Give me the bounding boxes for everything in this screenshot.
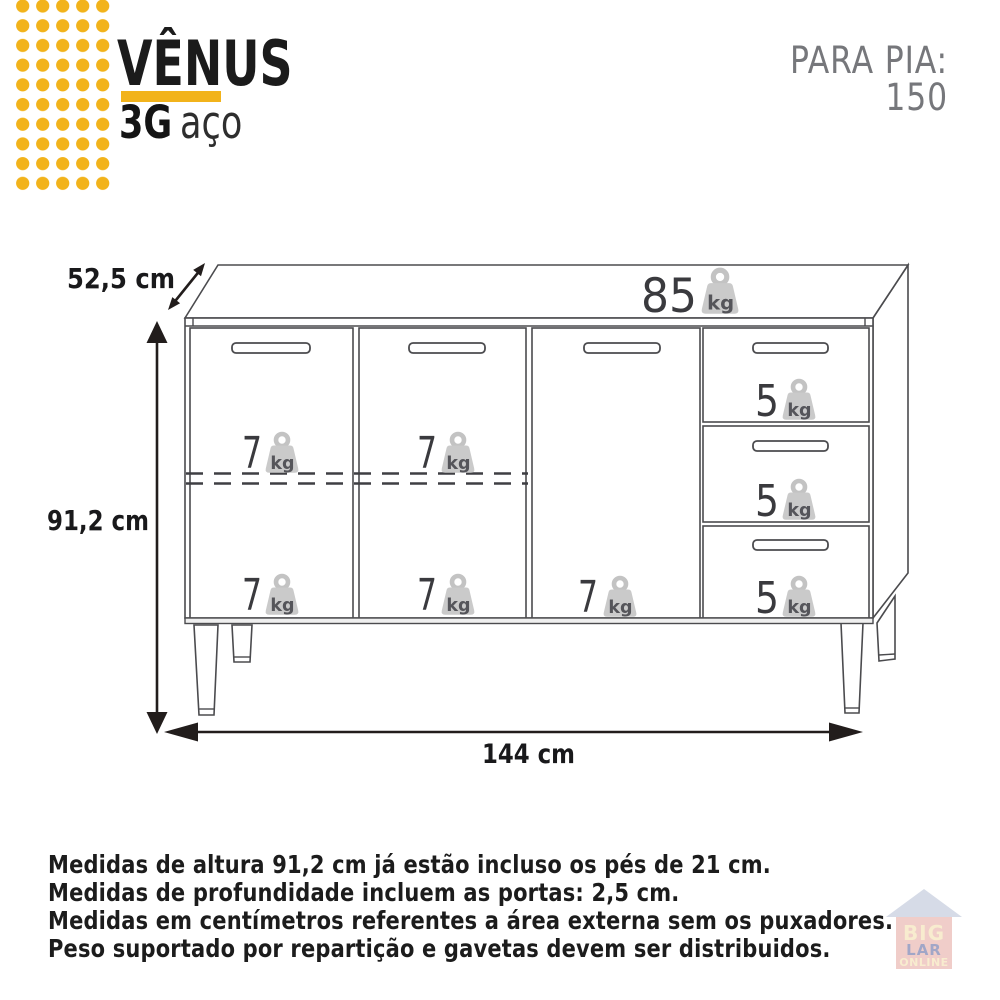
width-label: 144 cm — [482, 739, 575, 770]
series-label: 3G — [119, 96, 172, 149]
drawer2-capacity: 5 — [755, 476, 779, 527]
drawer3-capacity: 5 — [755, 573, 779, 624]
cabinet-side-face — [873, 265, 908, 618]
top-capacity-value: 85 — [641, 269, 697, 324]
material-label: aço — [180, 96, 242, 149]
cabinet-top-face — [185, 265, 908, 318]
note-depth: Medidas de profundidade incluem as porta… — [48, 879, 893, 907]
drawer1-capacity: 5 — [755, 376, 779, 427]
depth-label: 52,5 cm — [67, 262, 175, 295]
cabinet-leg-front-left — [194, 625, 218, 715]
watermark-house-roof — [886, 889, 962, 917]
sink-label: PARA PIA: — [608, 42, 948, 79]
product-name: VÊNUS — [117, 33, 293, 95]
door2-bottom-capacity: 7 — [417, 570, 437, 621]
note-weight-distribution: Peso suportado por repartição e gavetas … — [48, 935, 893, 963]
door1-top-capacity: 7 — [242, 428, 262, 479]
watermark-line3: ONLINE — [899, 956, 948, 969]
drawer-3-handle — [753, 540, 828, 550]
measurement-notes: Medidas de altura 91,2 cm já estão inclu… — [48, 851, 893, 963]
sink-value: 150 — [608, 79, 948, 116]
cabinet-leg-front-right — [841, 623, 863, 713]
dots-pattern-decoration — [0, 0, 112, 192]
note-height: Medidas de altura 91,2 cm já estão inclu… — [48, 851, 893, 879]
drawer-1-handle — [753, 343, 828, 353]
door3-bottom-capacity: 7 — [578, 572, 598, 623]
door2-top-capacity: 7 — [417, 428, 437, 479]
product-spec-sheet: { "header": { "product": "VÊNUS", "serie… — [0, 0, 1000, 1000]
door-1-handle — [232, 343, 310, 353]
door-3-handle — [584, 343, 660, 353]
cabinet-technical-drawing: kg 85 7 7 7 7 7 5 5 — [0, 235, 1000, 805]
door1-bottom-capacity: 7 — [242, 570, 262, 621]
height-label: 91,2 cm — [47, 504, 149, 537]
store-watermark-logo: BIG LAR ONLINE — [886, 887, 962, 971]
drawer-2-handle — [753, 441, 828, 451]
door-2-handle — [409, 343, 485, 353]
door-3 — [532, 328, 700, 618]
note-external-area: Medidas em centímetros referentes a área… — [48, 907, 893, 935]
product-series-line: 3Gaço — [119, 100, 242, 145]
sink-compatibility: PARA PIA: 150 — [608, 42, 948, 116]
